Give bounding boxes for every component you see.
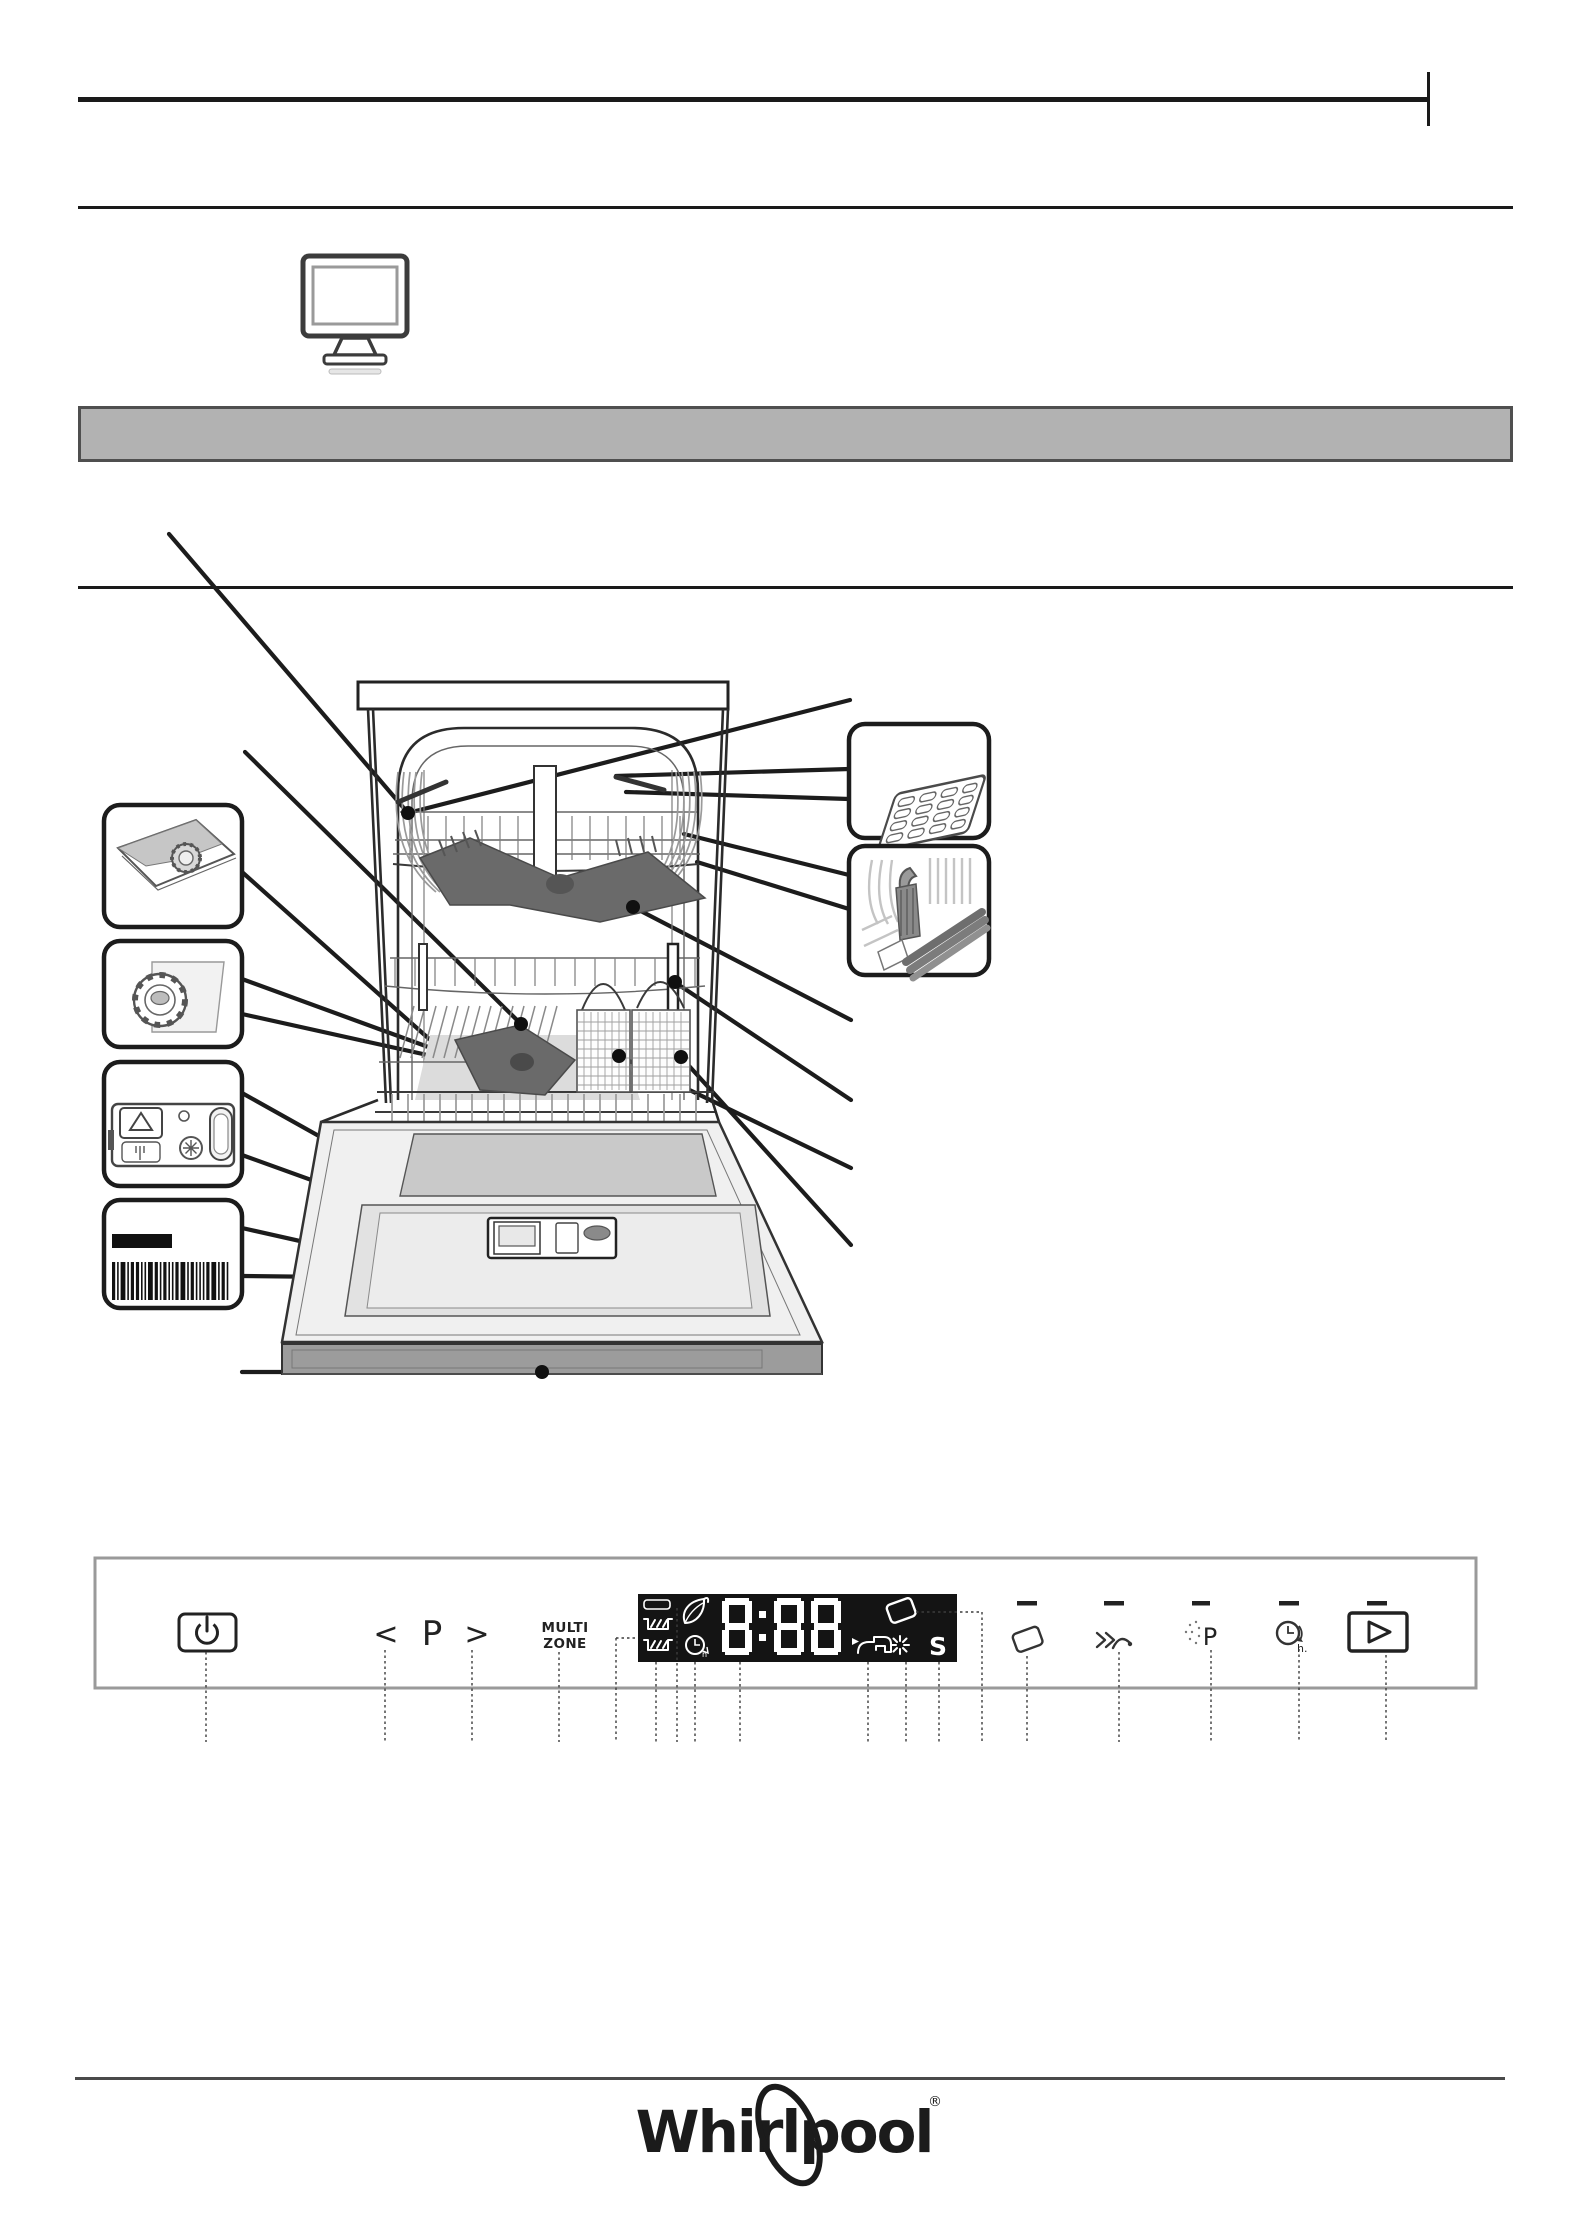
model-label-bar: [112, 1234, 172, 1248]
callout-foldable-tines: [849, 846, 989, 978]
multizone-label-2: ZONE: [543, 1636, 586, 1652]
powerclean-letter: P: [1203, 1623, 1217, 1651]
start-button[interactable]: [1349, 1613, 1407, 1651]
monitor-icon: [295, 252, 415, 377]
power-button[interactable]: [179, 1614, 236, 1651]
logo-wordmark: Whirlpool: [636, 2098, 933, 2166]
lcd-display: h S: [638, 1594, 957, 1662]
section-banner: [78, 406, 1513, 462]
callout-dispenser-detail: [104, 1062, 242, 1186]
program-prev-button[interactable]: <: [373, 1617, 398, 1652]
manual-page: < P > MULTI ZONE: [0, 0, 1576, 2233]
delay-hour-label: h.: [1297, 1642, 1307, 1655]
multizone-label-1: MULTI: [542, 1620, 589, 1636]
callout-salt-funnel: [104, 805, 242, 927]
shelf-clip-right: [616, 777, 664, 790]
shelf-clip-left: [398, 782, 446, 802]
worktop: [358, 682, 728, 709]
callout-rating-plate: [104, 1200, 242, 1308]
crop-mark-tick: [1427, 72, 1430, 126]
section-rule-1: [78, 206, 1513, 209]
dishwasher-machine: [282, 682, 822, 1379]
callout-foldable-shelf: [849, 724, 997, 851]
clock-hour-label: h: [702, 1650, 707, 1659]
registered-mark: ®: [928, 2094, 942, 2110]
control-panel-diagram: < P > MULTI ZONE: [90, 1552, 1490, 1752]
callout-salt-cap: [104, 941, 242, 1047]
door: [282, 1122, 822, 1342]
dishwasher-diagram: [95, 520, 1000, 1400]
detergent-dispenser: [488, 1218, 616, 1258]
program-letter: P: [422, 1614, 443, 1654]
program-next-button[interactable]: >: [464, 1617, 489, 1652]
top-rule: [78, 97, 1429, 102]
kickplate: [282, 1344, 822, 1374]
multizone-button[interactable]: MULTI ZONE: [542, 1620, 589, 1652]
whirlpool-logo: Whirlpool ®: [600, 2080, 980, 2210]
salt-indicator: S: [929, 1632, 947, 1661]
